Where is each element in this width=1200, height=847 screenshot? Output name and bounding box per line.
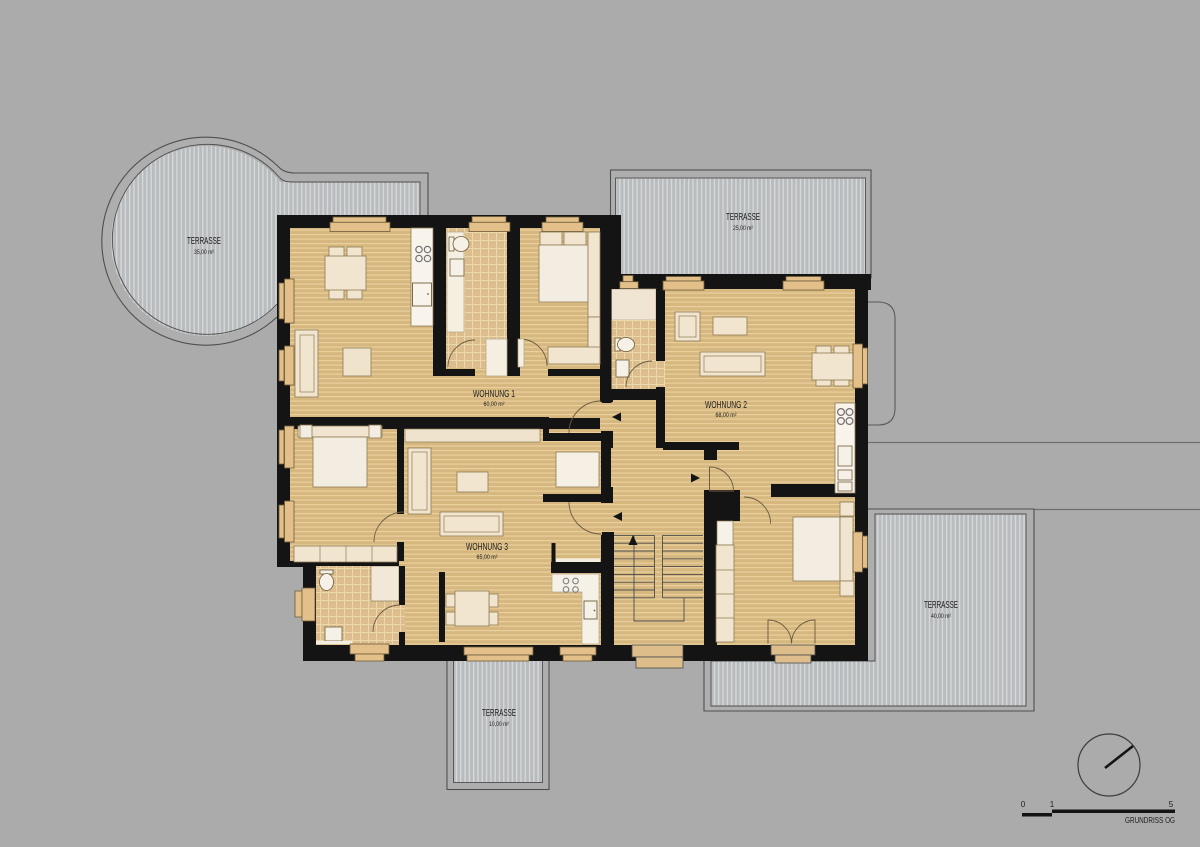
svg-text:1: 1 — [1050, 800, 1055, 809]
svg-text:5: 5 — [1169, 800, 1174, 809]
svg-text:25,00 m²: 25,00 m² — [733, 225, 753, 232]
svg-text:GRUNDRISS OG: GRUNDRISS OG — [1125, 816, 1175, 825]
svg-text:WOHNUNG 2: WOHNUNG 2 — [705, 400, 747, 411]
svg-text:TERRASSE: TERRASSE — [482, 708, 516, 719]
svg-text:60,00 m²: 60,00 m² — [484, 401, 505, 408]
svg-text:10,00 m²: 10,00 m² — [489, 721, 509, 728]
svg-text:35,00 m²: 35,00 m² — [194, 249, 214, 256]
svg-text:TERRASSE: TERRASSE — [924, 600, 958, 611]
svg-text:TERRASSE: TERRASSE — [726, 212, 760, 223]
svg-text:TERRASSE: TERRASSE — [187, 236, 221, 247]
svg-text:40,00 m²: 40,00 m² — [931, 613, 951, 620]
svg-text:65,00 m²: 65,00 m² — [477, 554, 498, 561]
svg-text:0: 0 — [1021, 800, 1026, 809]
svg-text:WOHNUNG 3: WOHNUNG 3 — [466, 542, 508, 553]
svg-text:WOHNUNG 1: WOHNUNG 1 — [473, 389, 515, 400]
svg-text:68,00 m²: 68,00 m² — [716, 412, 737, 419]
